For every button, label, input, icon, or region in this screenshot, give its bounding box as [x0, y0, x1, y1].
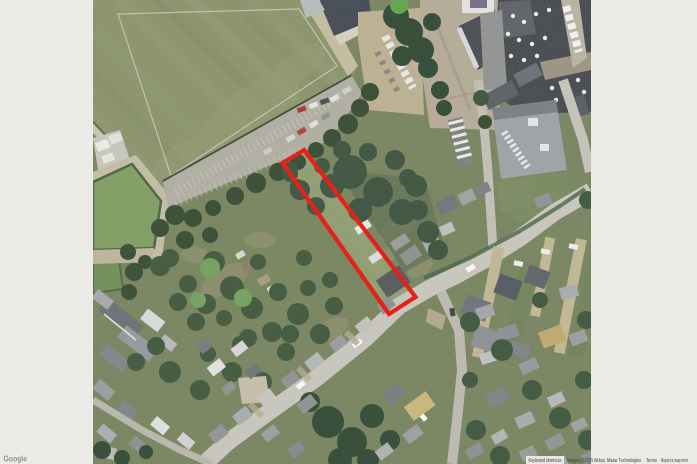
svg-text:Keyboard shortcuts: Keyboard shortcuts	[529, 458, 562, 464]
svg-text:Terms: Terms	[646, 458, 657, 464]
svg-text:Imagery ©2025 Airbus, Maxar Te: Imagery ©2025 Airbus, Maxar Technologies	[567, 457, 641, 464]
svg-text:Report a map error: Report a map error	[661, 458, 688, 464]
svg-text:Google: Google	[4, 455, 28, 464]
